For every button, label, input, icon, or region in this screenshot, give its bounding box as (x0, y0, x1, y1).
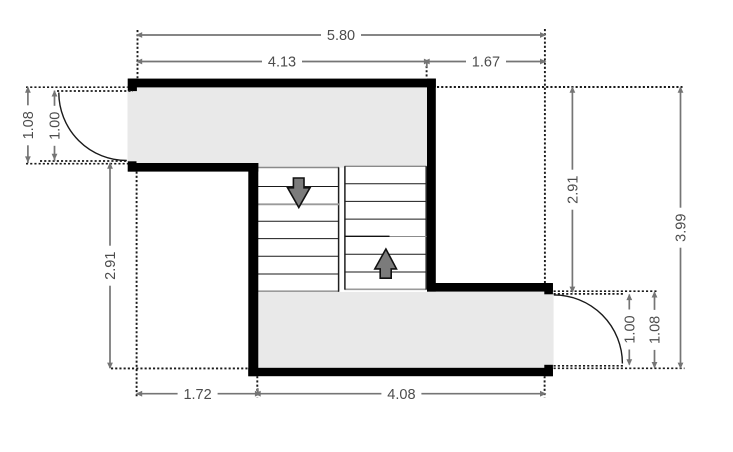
svg-text:5.80: 5.80 (327, 28, 355, 44)
svg-text:1.00: 1.00 (622, 315, 638, 343)
svg-text:4.13: 4.13 (268, 55, 296, 71)
svg-text:1.08: 1.08 (648, 316, 664, 344)
svg-text:2.91: 2.91 (103, 252, 119, 280)
svg-text:2.91: 2.91 (565, 176, 581, 204)
svg-text:1.08: 1.08 (21, 111, 37, 139)
svg-text:3.99: 3.99 (674, 214, 690, 242)
svg-text:4.08: 4.08 (387, 387, 415, 403)
svg-text:1.67: 1.67 (472, 55, 500, 71)
svg-text:1.72: 1.72 (183, 387, 211, 403)
svg-text:1.00: 1.00 (48, 112, 64, 140)
